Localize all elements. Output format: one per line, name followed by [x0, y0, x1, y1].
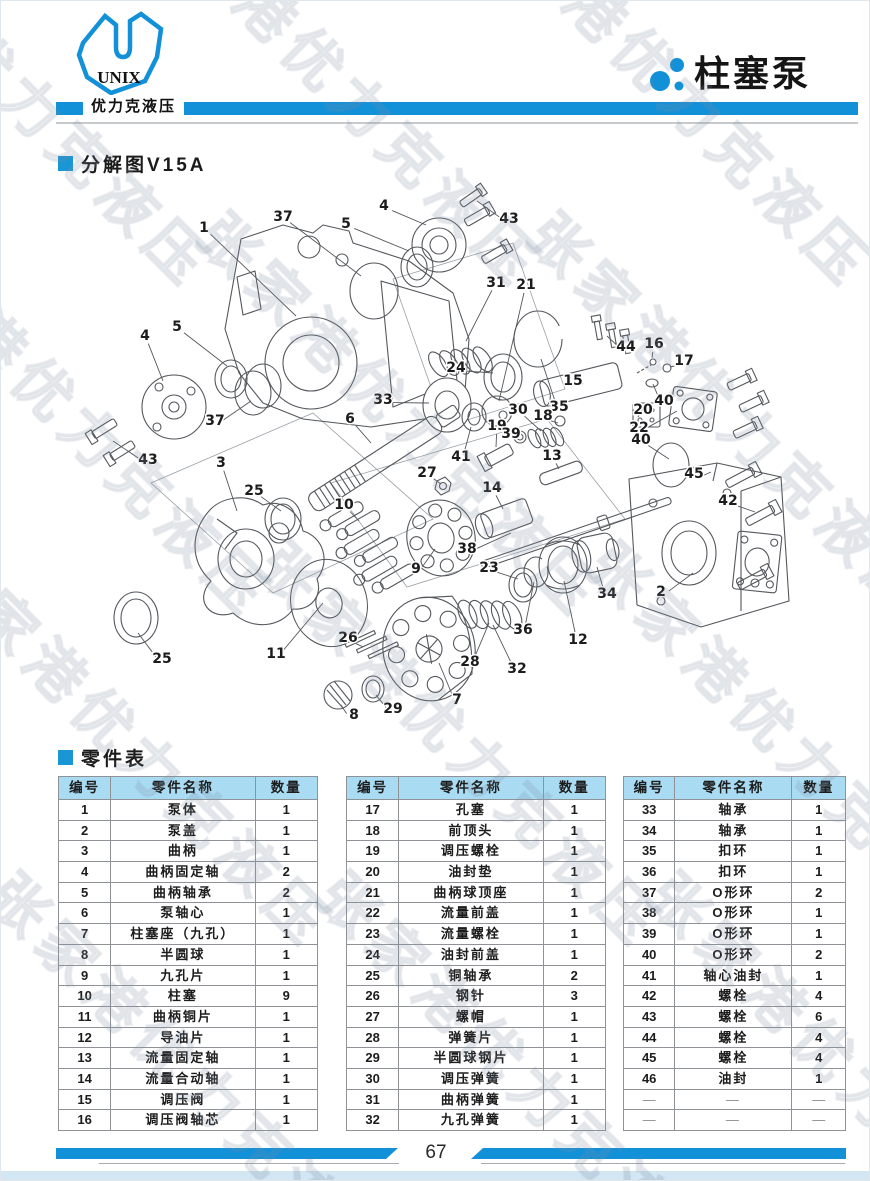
part-name: 导油片 [111, 1027, 255, 1048]
column-header: 数量 [792, 777, 846, 800]
column-header: 编号 [59, 777, 111, 800]
part-name: 螺栓 [675, 1006, 792, 1027]
part-name: 扣环 [675, 841, 792, 862]
part-number: 30 [347, 1068, 399, 1089]
table-row: 31曲柄弹簧1 [347, 1089, 606, 1110]
parts-table: 编号零件名称数量17孔塞118前顶头119调压螺栓120油封垫121曲柄球顶座1… [346, 776, 606, 1131]
part-number: 38 [624, 903, 675, 924]
part-name: 柱塞座（九孔） [111, 924, 255, 945]
parts-section-title: 零件表 [81, 744, 147, 771]
part-name: 油封 [675, 1068, 792, 1089]
part-number: 10 [59, 986, 111, 1007]
part-qty: 2 [792, 944, 846, 965]
part-qty: 4 [792, 986, 846, 1007]
part-name: 半圆球钢片 [399, 1048, 543, 1069]
table-row: 9九孔片1 [59, 965, 318, 986]
footer-bar-right [471, 1148, 846, 1159]
table-row: 40O形环2 [624, 944, 846, 965]
callout-leader-line [184, 333, 227, 366]
table-row: 30调压弹簧1 [347, 1068, 606, 1089]
part-name: 螺栓 [675, 986, 792, 1007]
callout-number: 24 [446, 360, 466, 376]
table-row: 19调压螺栓1 [347, 841, 606, 862]
part-qty: 1 [255, 1068, 317, 1089]
callout-number: 43 [499, 211, 518, 227]
callout-number: 34 [597, 586, 617, 602]
parts-table: 编号零件名称数量1泵体12泵盖13曲柄14曲柄固定轴25曲柄轴承26泵轴心17柱… [58, 776, 318, 1131]
table-row: 45螺栓4 [624, 1048, 846, 1069]
callout-number: 5 [341, 216, 351, 232]
part-name: O形环 [675, 924, 792, 945]
callout-number: 25 [244, 483, 263, 499]
part-number: 40 [624, 944, 675, 965]
part-name: 调压螺栓 [399, 841, 543, 862]
callout-number: 3 [216, 455, 226, 471]
part-qty: 1 [543, 1110, 605, 1131]
header-rule [56, 122, 858, 124]
part-name: 曲柄固定轴 [111, 862, 255, 883]
callout-number: 44 [616, 339, 636, 355]
part-name: 九孔弹簧 [399, 1110, 543, 1131]
part-qty: 1 [543, 1048, 605, 1069]
part-number: 25 [347, 965, 399, 986]
part-name: 流量固定轴 [111, 1048, 255, 1069]
bottom-band [1, 1171, 869, 1180]
part-name: 轴心油封 [675, 965, 792, 986]
part-name: 泵轴心 [111, 903, 255, 924]
part-qty: 2 [792, 882, 846, 903]
table-row: 26钢针3 [347, 986, 606, 1007]
callout-number: 40 [654, 393, 674, 409]
part-name: 曲柄球顶座 [399, 882, 543, 903]
table-row: 25铜轴承2 [347, 965, 606, 986]
callout-number: 29 [383, 701, 402, 717]
part-name: 油封前盖 [399, 944, 543, 965]
column-header: 编号 [624, 777, 675, 800]
exploded-diagram: 1375443312145374332524336413530181939132… [41, 181, 841, 741]
callout-number: 1 [199, 220, 209, 236]
part-name: 泵盖 [111, 820, 255, 841]
part-name: 孔塞 [399, 800, 543, 821]
part-qty: 1 [255, 800, 317, 821]
part-qty: 1 [543, 1027, 605, 1048]
callout-leader-line [224, 471, 237, 511]
diagram-parts [85, 183, 789, 709]
part-qty: 9 [255, 986, 317, 1007]
table-row: 2泵盖1 [59, 820, 318, 841]
table-row: ——— [624, 1089, 846, 1110]
callout-number: 12 [568, 632, 587, 648]
table-row: 15调压阀1 [59, 1089, 318, 1110]
part-number: 23 [347, 924, 399, 945]
callout-leader-line [356, 426, 371, 443]
part-qty: 1 [792, 800, 846, 821]
callout-number: 45 [684, 466, 703, 482]
footer-rule-left [99, 1163, 399, 1164]
table-row: 10柱塞9 [59, 986, 318, 1007]
part-number: 26 [347, 986, 399, 1007]
part-number: 42 [624, 986, 675, 1007]
table-row: 3曲柄1 [59, 841, 318, 862]
part-name: 泵体 [111, 800, 255, 821]
logo-text: UNIX [97, 68, 141, 87]
part-name: O形环 [675, 903, 792, 924]
column-header: 零件名称 [111, 777, 255, 800]
part-name: 螺栓 [675, 1027, 792, 1048]
logo-unix-icon: UNIX [53, 7, 183, 101]
part-name: 轴承 [675, 820, 792, 841]
part-name: 螺帽 [399, 1006, 543, 1027]
part-qty: 1 [255, 903, 317, 924]
part-name: 螺栓 [675, 1048, 792, 1069]
part-qty: 1 [543, 800, 605, 821]
part-name: 流量螺栓 [399, 924, 543, 945]
table-row: 37O形环2 [624, 882, 846, 903]
part-name: 钢针 [399, 986, 543, 1007]
callout-number: 39 [501, 426, 520, 442]
callout-number: 4 [140, 328, 150, 344]
part-number: 41 [624, 965, 675, 986]
part-name: O形环 [675, 944, 792, 965]
part-number: 27 [347, 1006, 399, 1027]
part-qty: 1 [255, 1048, 317, 1069]
part-number: — [624, 1089, 675, 1110]
part-qty: 1 [255, 944, 317, 965]
callout-number: 10 [334, 497, 354, 513]
part-number: 32 [347, 1110, 399, 1131]
callout-number: 4 [379, 198, 389, 214]
part-qty: 1 [792, 924, 846, 945]
part-name: 半圆球 [111, 944, 255, 965]
part-number: 19 [347, 841, 399, 862]
callout-number: 31 [486, 275, 505, 291]
part-name: 调压弹簧 [399, 1068, 543, 1089]
callout-number: 42 [718, 493, 737, 509]
part-number: 33 [624, 800, 675, 821]
callout-number: 15 [563, 373, 582, 389]
table-row: 20油封垫1 [347, 862, 606, 883]
part-number: 6 [59, 903, 111, 924]
part-number: 39 [624, 924, 675, 945]
table-row: 21曲柄球顶座1 [347, 882, 606, 903]
part-name: 扣环 [675, 862, 792, 883]
page-number: 67 [401, 1142, 471, 1164]
part-qty: 1 [543, 862, 605, 883]
part-qty: 1 [255, 1027, 317, 1048]
table-row: 5曲柄轴承2 [59, 882, 318, 903]
parts-table: 编号零件名称数量33轴承134轴承135扣环136扣环137O形环238O形环1… [623, 776, 846, 1131]
callout-number: 16 [644, 336, 663, 352]
table-row: 36扣环1 [624, 862, 846, 883]
part-name: 九孔片 [111, 965, 255, 986]
callout-leader-line [525, 582, 534, 626]
diagram-callouts: 1375443312145374332524336413530181939132… [113, 198, 755, 723]
callout-number: 7 [452, 692, 462, 708]
catalog-page: 张家港优力克液压张家港优力克液压张家港优力克液压张家港优力克液压张家港优力克液压… [0, 0, 870, 1181]
part-number: 5 [59, 882, 111, 903]
part-name: 曲柄弹簧 [399, 1089, 543, 1110]
callout-number: 30 [508, 402, 528, 418]
footer-rule-right [481, 1163, 845, 1164]
callout-leader-line [669, 573, 693, 591]
callout-number: 14 [482, 480, 502, 496]
callout-number: 33 [373, 392, 392, 408]
part-qty: 1 [792, 965, 846, 986]
callout-number: 9 [411, 561, 421, 577]
table-row: 27螺帽1 [347, 1006, 606, 1027]
callout-leader-line [282, 603, 323, 652]
part-qty: 4 [792, 1027, 846, 1048]
callout-number: 18 [533, 408, 552, 424]
part-number: 43 [624, 1006, 675, 1027]
part-qty: 1 [792, 862, 846, 883]
part-qty: 1 [792, 820, 846, 841]
callout-number: 8 [349, 707, 359, 723]
part-qty: 3 [543, 986, 605, 1007]
part-number: 28 [347, 1027, 399, 1048]
part-qty: 1 [255, 1110, 317, 1131]
callout-number: 41 [451, 449, 470, 465]
callout-number: 17 [674, 353, 693, 369]
callout-number: 6 [345, 411, 355, 427]
callout-leader-line [499, 293, 524, 401]
part-qty: 1 [255, 1006, 317, 1027]
callout-number: 37 [205, 413, 224, 429]
table-row: 12导油片1 [59, 1027, 318, 1048]
part-name: — [675, 1110, 792, 1131]
table-row: 13流量固定轴1 [59, 1048, 318, 1069]
part-qty: 1 [543, 903, 605, 924]
column-header: 编号 [347, 777, 399, 800]
table-row: 16调压阀轴芯1 [59, 1110, 318, 1131]
part-qty: 1 [543, 820, 605, 841]
part-name: 弹簧片 [399, 1027, 543, 1048]
part-name: 曲柄铜片 [111, 1006, 255, 1027]
table-row: 23流量螺栓1 [347, 924, 606, 945]
column-header: 数量 [543, 777, 605, 800]
page-title: 柱塞泵 [694, 45, 811, 97]
part-number: 8 [59, 944, 111, 965]
part-qty: 1 [792, 1068, 846, 1089]
part-qty: 2 [255, 882, 317, 903]
callout-leader-line [392, 211, 426, 225]
table-row: 46油封1 [624, 1068, 846, 1089]
table-row: 1泵体1 [59, 800, 318, 821]
part-qty: 1 [543, 1089, 605, 1110]
part-name: 流量前盖 [399, 903, 543, 924]
part-number: 45 [624, 1048, 675, 1069]
part-number: — [624, 1110, 675, 1131]
part-number: 13 [59, 1048, 111, 1069]
callout-leader-line [497, 572, 518, 579]
callout-number: 5 [172, 319, 182, 335]
part-number: 17 [347, 800, 399, 821]
part-qty: 1 [792, 841, 846, 862]
part-name: 调压阀轴芯 [111, 1110, 255, 1131]
part-number: 24 [347, 944, 399, 965]
part-number: 22 [347, 903, 399, 924]
callout-leader-line [466, 290, 492, 341]
part-qty: 6 [792, 1006, 846, 1027]
part-number: 37 [624, 882, 675, 903]
part-number: 31 [347, 1089, 399, 1110]
table-row: 4曲柄固定轴2 [59, 862, 318, 883]
table-row: 17孔塞1 [347, 800, 606, 821]
part-name: 曲柄轴承 [111, 882, 255, 903]
part-name: 曲柄 [111, 841, 255, 862]
part-number: 2 [59, 820, 111, 841]
callout-leader-line [648, 445, 669, 459]
part-qty: 1 [543, 841, 605, 862]
table-row: 18前顶头1 [347, 820, 606, 841]
section-bullet-icon [58, 156, 73, 171]
callout-number: 36 [513, 622, 532, 638]
part-number: 16 [59, 1110, 111, 1131]
table-row: 29半圆球钢片1 [347, 1048, 606, 1069]
callout-number: 26 [338, 630, 357, 646]
part-qty: 1 [255, 820, 317, 841]
part-number: 7 [59, 924, 111, 945]
part-qty: 2 [543, 965, 605, 986]
table-row: 44螺栓4 [624, 1027, 846, 1048]
callout-number: 11 [266, 646, 285, 662]
part-number: 36 [624, 862, 675, 883]
part-number: 35 [624, 841, 675, 862]
part-qty: 1 [543, 1068, 605, 1089]
table-row: 14流量合动轴1 [59, 1068, 318, 1089]
title-dots-icon [646, 49, 686, 93]
table-row: 35扣环1 [624, 841, 846, 862]
callout-number: 21 [516, 277, 535, 293]
part-qty: 1 [255, 1089, 317, 1110]
callout-number: 23 [479, 560, 498, 576]
footer-bar-left [56, 1148, 398, 1159]
part-number: 44 [624, 1027, 675, 1048]
part-name: 油封垫 [399, 862, 543, 883]
table-row: 24油封前盖1 [347, 944, 606, 965]
table-row: 28弹簧片1 [347, 1027, 606, 1048]
table-row: 41轴心油封1 [624, 965, 846, 986]
part-number: 9 [59, 965, 111, 986]
part-qty: 1 [543, 944, 605, 965]
callout-leader-line [493, 625, 513, 666]
section-title-diagram: 分解图V15A [81, 150, 207, 177]
callout-number: 37 [273, 209, 292, 225]
part-qty: 2 [255, 862, 317, 883]
callout-number: 40 [631, 432, 651, 448]
table-row: 7柱塞座（九孔）1 [59, 924, 318, 945]
part-number: 3 [59, 841, 111, 862]
table-row: 34轴承1 [624, 820, 846, 841]
part-name: O形环 [675, 882, 792, 903]
part-qty: 1 [255, 924, 317, 945]
table-row: 43螺栓6 [624, 1006, 846, 1027]
part-qty: — [792, 1110, 846, 1131]
part-name: 调压阀 [111, 1089, 255, 1110]
part-qty: — [792, 1089, 846, 1110]
callout-leader-line [210, 234, 296, 316]
part-number: 46 [624, 1068, 675, 1089]
table-row: ——— [624, 1110, 846, 1131]
part-number: 21 [347, 882, 399, 903]
column-header: 零件名称 [399, 777, 543, 800]
part-name: 轴承 [675, 800, 792, 821]
callout-number: 13 [542, 448, 561, 464]
column-header: 数量 [255, 777, 317, 800]
part-name: 前顶头 [399, 820, 543, 841]
part-number: 1 [59, 800, 111, 821]
part-number: 14 [59, 1068, 111, 1089]
part-qty: 1 [255, 965, 317, 986]
callout-number: 20 [633, 402, 653, 418]
table-row: 33轴承1 [624, 800, 846, 821]
callout-number: 25 [152, 651, 171, 667]
part-number: 20 [347, 862, 399, 883]
part-qty: 1 [543, 924, 605, 945]
callout-leader-line [703, 472, 711, 476]
part-name: — [675, 1089, 792, 1110]
section-bullet-icon [58, 750, 73, 765]
part-qty: 1 [255, 841, 317, 862]
callout-leader-line [736, 505, 755, 512]
column-header: 零件名称 [675, 777, 792, 800]
table-row: 8半圆球1 [59, 944, 318, 965]
table-row: 42螺栓4 [624, 986, 846, 1007]
callout-leader-line [496, 434, 497, 447]
table-row: 39O形环1 [624, 924, 846, 945]
callout-number: 38 [457, 541, 476, 557]
part-qty: 4 [792, 1048, 846, 1069]
part-number: 15 [59, 1089, 111, 1110]
callout-number: 43 [138, 452, 157, 468]
part-qty: 1 [543, 1006, 605, 1027]
part-number: 11 [59, 1006, 111, 1027]
callout-leader-line [652, 352, 653, 358]
callout-number: 32 [507, 661, 526, 677]
table-row: 32九孔弹簧1 [347, 1110, 606, 1131]
table-row: 38O形环1 [624, 903, 846, 924]
table-row: 6泵轴心1 [59, 903, 318, 924]
part-qty: 1 [543, 882, 605, 903]
table-row: 22流量前盖1 [347, 903, 606, 924]
callout-number: 28 [460, 654, 479, 670]
part-name: 柱塞 [111, 986, 255, 1007]
part-qty: 1 [792, 903, 846, 924]
logo-subtitle: 优力克液压 [83, 95, 184, 116]
part-number: 18 [347, 820, 399, 841]
callout-leader-line [354, 228, 409, 251]
part-name: 铜轴承 [399, 965, 543, 986]
header-logo: UNIX [53, 7, 183, 101]
part-number: 29 [347, 1048, 399, 1069]
table-row: 11曲柄铜片1 [59, 1006, 318, 1027]
callout-number: 27 [417, 465, 436, 481]
part-name: 流量合动轴 [111, 1068, 255, 1089]
callout-number: 2 [656, 584, 666, 600]
part-number: 4 [59, 862, 111, 883]
callout-leader-line [148, 344, 163, 381]
part-number: 34 [624, 820, 675, 841]
part-number: 12 [59, 1027, 111, 1048]
